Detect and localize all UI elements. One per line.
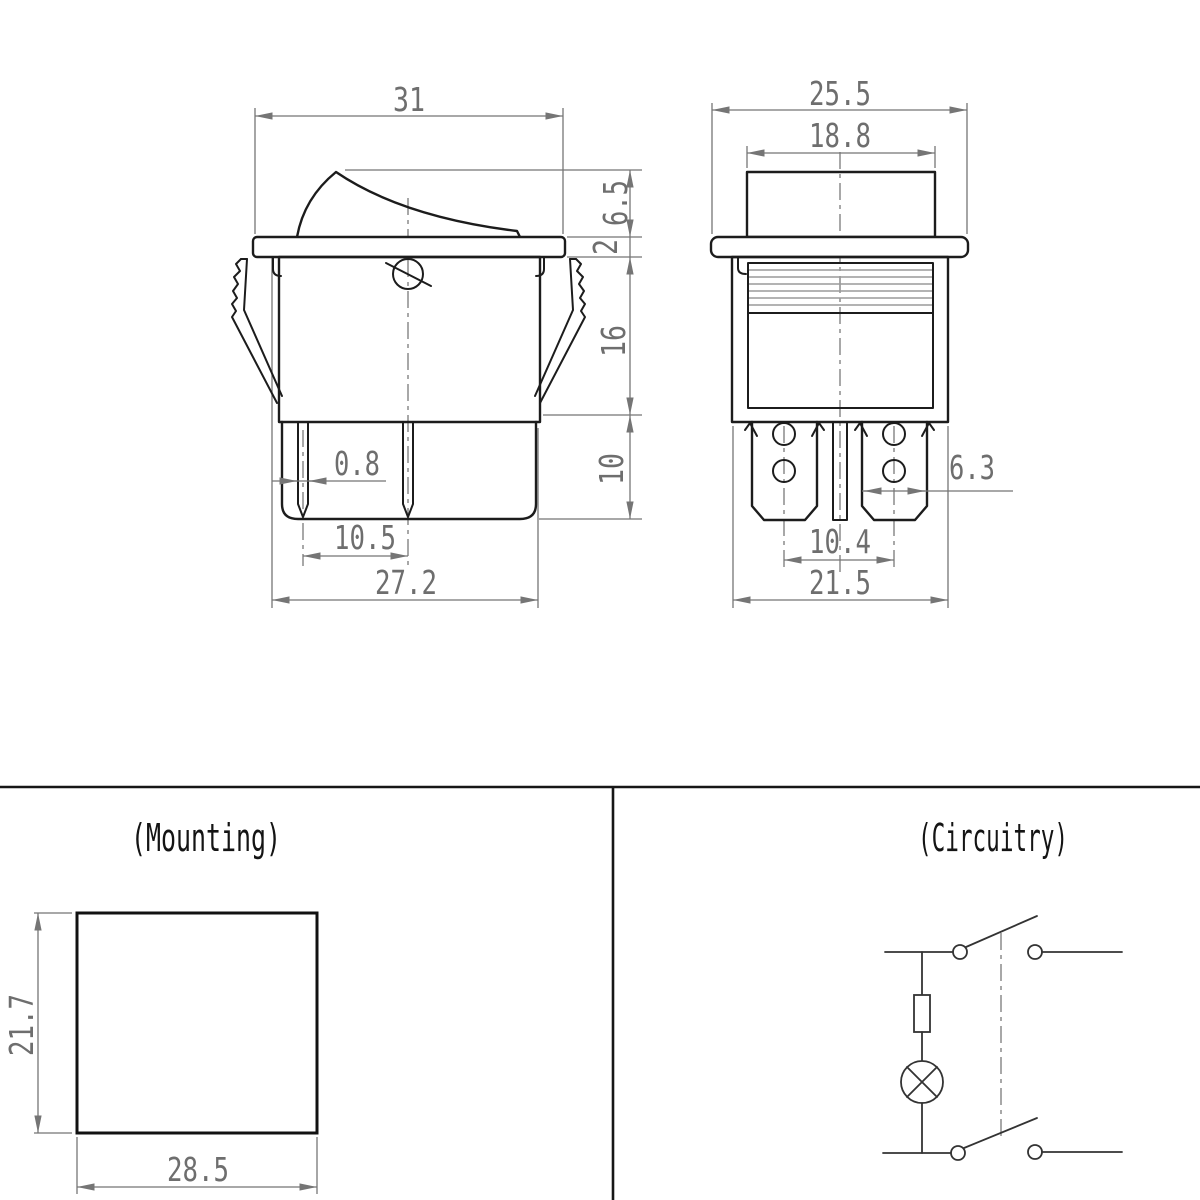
technical-drawing-canvas: 31 6.5 2 16 10 0.8 10.5 27.2 (0, 0, 1200, 1200)
circuitry-title: (Circuitry) (918, 816, 1068, 860)
dim-label-0-8: 0.8 (334, 444, 380, 483)
dim-side-overall-width: 27.2 (272, 563, 538, 602)
dim-front-flange-width: 25.5 (712, 74, 967, 113)
contact-terminal (953, 945, 967, 959)
dim-side-pin-spacing: 10.5 (303, 518, 408, 557)
dim-label-21-7: 21.7 (2, 994, 41, 1056)
dim-label-10-5: 10.5 (334, 518, 396, 557)
contact-terminal (951, 1146, 965, 1160)
switch-body-side (279, 257, 540, 422)
dim-front-rocker-width: 18.8 (747, 116, 935, 155)
lamp-symbol (901, 1061, 943, 1103)
mounting-cutout-rect (77, 913, 317, 1133)
dim-label-25-5: 25.5 (809, 74, 871, 113)
rocker-switch-datasheet: 31 6.5 2 16 10 0.8 10.5 27.2 (0, 0, 1200, 1200)
retaining-clip-left (232, 259, 282, 403)
retaining-clip-right (535, 259, 585, 403)
dim-label-27-2: 27.2 (375, 563, 437, 602)
rocker-front-face (747, 172, 935, 237)
mounting-title: (Mounting) (131, 816, 281, 860)
dim-label-16: 16 (594, 325, 633, 357)
dim-side-height-chain: 6.5 2 16 10 (586, 170, 635, 519)
mounting-flange-side (253, 237, 565, 257)
dim-label-28-5: 28.5 (167, 1150, 229, 1189)
front-view: 25.5 18.8 6.3 10.4 21.5 (711, 74, 1013, 608)
dim-side-pin-thickness: 0.8 (272, 444, 386, 483)
dim-mounting-width: 28.5 (77, 1150, 317, 1189)
mounting-panel: (Mounting) 21.7 28.5 (2, 816, 317, 1194)
dim-front-terminal-spacing: 10.4 (784, 522, 894, 561)
dim-mounting-height: 21.7 (2, 913, 41, 1133)
dim-label-10-4: 10.4 (809, 522, 871, 561)
dim-front-terminal-width: 6.3 (862, 448, 1013, 491)
resistor-symbol (914, 995, 930, 1032)
dim-label-6-5: 6.5 (596, 180, 635, 226)
side-view: 31 6.5 2 16 10 0.8 10.5 27.2 (232, 80, 642, 608)
dim-label-21-5: 21.5 (809, 563, 871, 602)
body-rib-lines (748, 270, 933, 313)
circuitry-panel: (Circuitry) (883, 816, 1122, 1160)
dim-label-31: 31 (393, 80, 425, 119)
dim-label-10: 10 (592, 453, 631, 485)
mounting-flange-front (711, 237, 968, 257)
lower-housing-side (282, 422, 536, 519)
dim-side-top-width: 31 (255, 80, 563, 119)
contact-terminal (1028, 1145, 1042, 1159)
contact-terminal (1028, 945, 1042, 959)
dim-label-2: 2 (586, 239, 625, 255)
dim-label-6-3: 6.3 (949, 448, 995, 487)
dim-label-18-8: 18.8 (809, 116, 871, 155)
dim-front-body-width: 21.5 (733, 563, 948, 602)
circuit-schematic (883, 916, 1122, 1160)
side-extension-lines (255, 108, 642, 608)
body-notch-left (738, 257, 746, 274)
